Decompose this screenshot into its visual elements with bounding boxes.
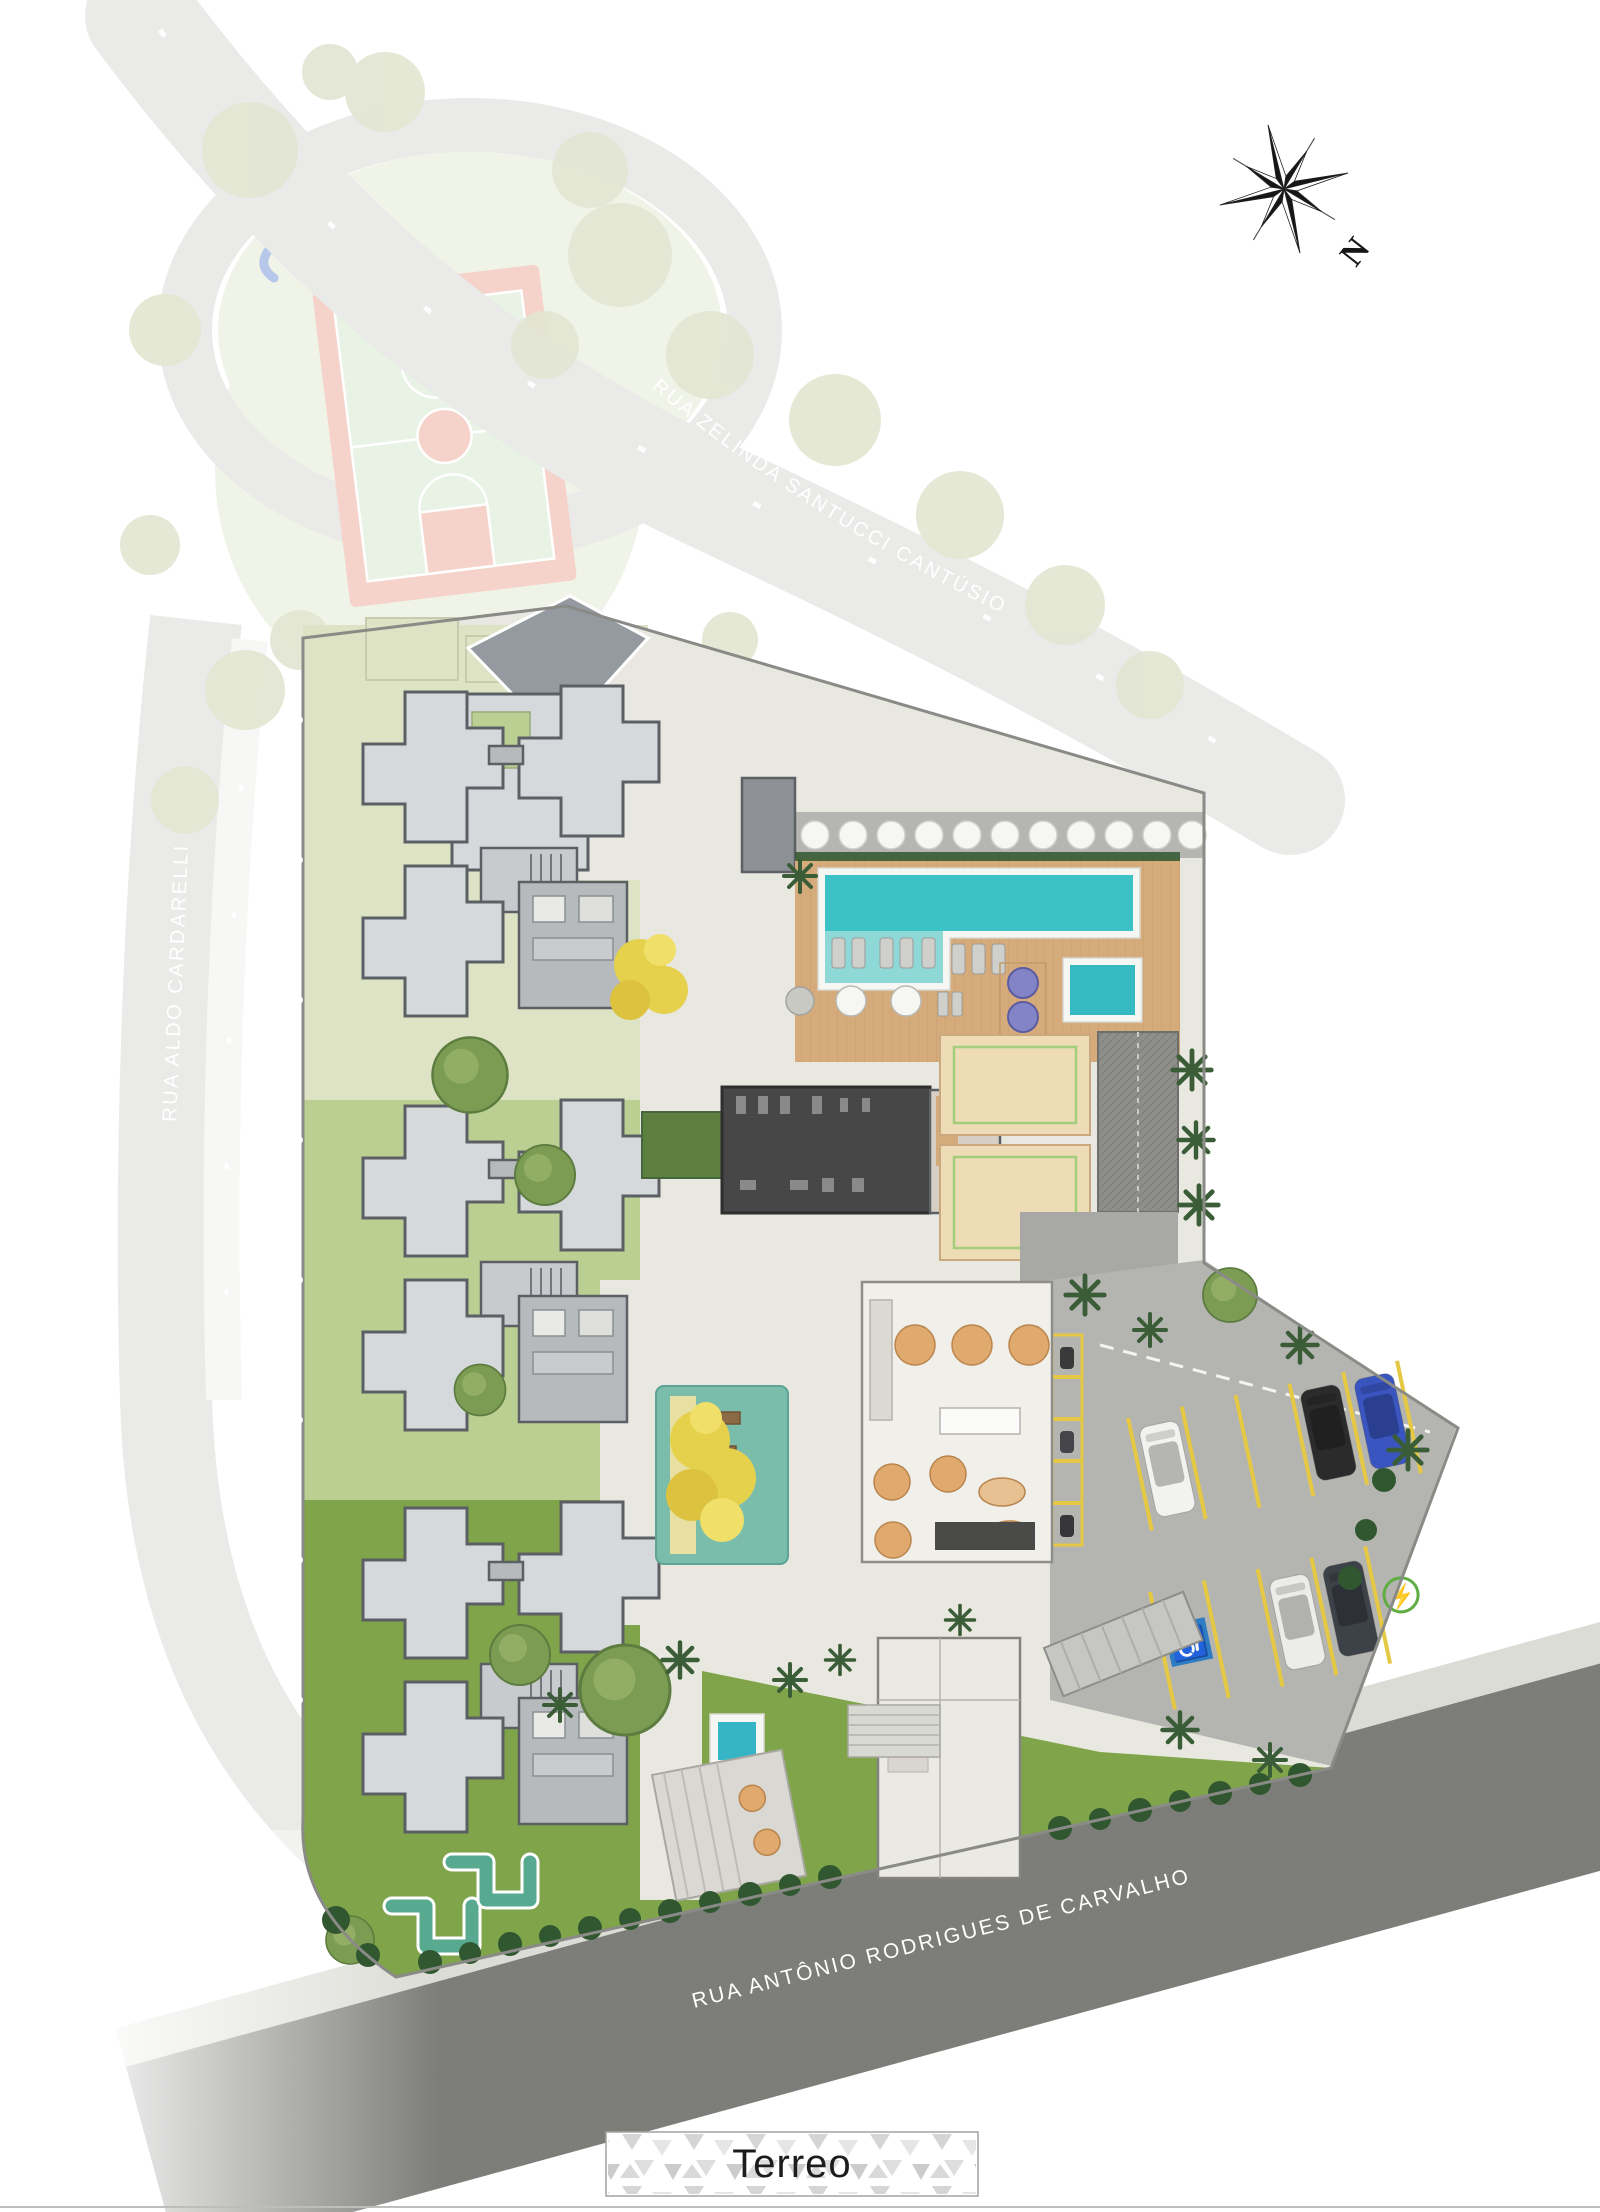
- party-hall: [862, 1282, 1052, 1562]
- bottom-divider: [0, 2206, 1600, 2208]
- stairs: [848, 1705, 940, 1757]
- kids-pool: [1063, 958, 1142, 1022]
- pool-pergola: [795, 812, 1206, 858]
- sand-court-1: [940, 1035, 1090, 1135]
- site-plan-rendering: ♿ ⚡: [0, 0, 1600, 2212]
- site-plan-page: ♿ ⚡: [0, 0, 1600, 2212]
- service-block: [742, 778, 795, 872]
- pool-deck: [786, 852, 1180, 1062]
- floor-label: Terreo: [606, 2132, 978, 2196]
- floor-label-text: Terreo: [732, 2142, 851, 2186]
